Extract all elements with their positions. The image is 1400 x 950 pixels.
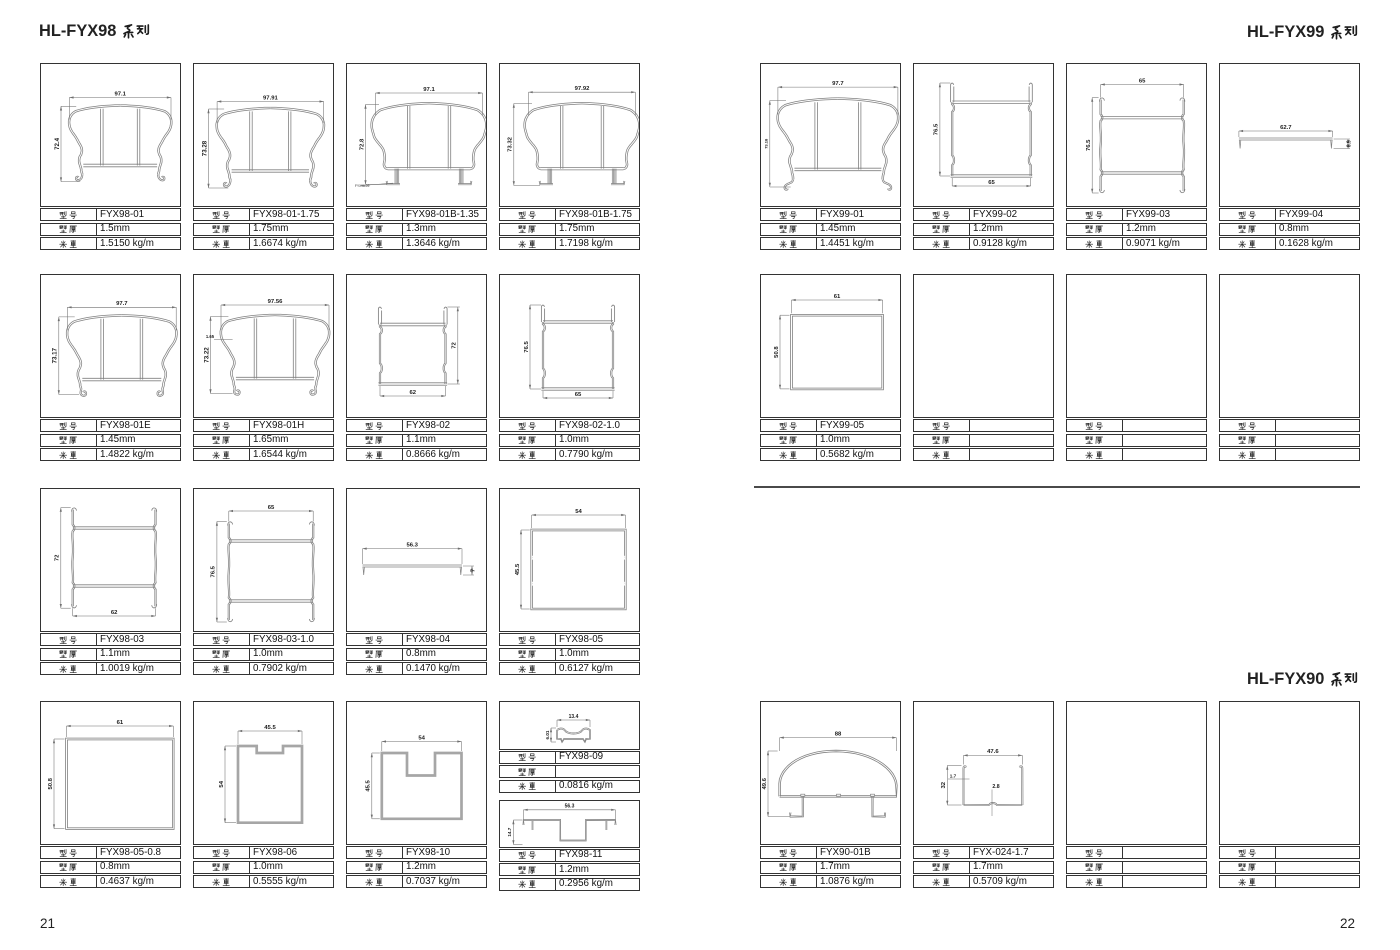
svg-text:62: 62: [111, 610, 118, 616]
svg-text:76.5: 76.5: [1086, 139, 1092, 151]
svg-text:45.5: 45.5: [264, 725, 276, 731]
svg-text:7: 7: [471, 569, 477, 572]
svg-text:73.32: 73.32: [508, 136, 514, 151]
svg-text:47.6: 47.6: [987, 749, 999, 755]
svg-text:65: 65: [1139, 78, 1146, 84]
svg-text:61: 61: [117, 720, 124, 726]
svg-text:88: 88: [835, 731, 842, 737]
svg-text:50.8: 50.8: [48, 777, 54, 789]
svg-text:56.3: 56.3: [565, 804, 575, 810]
svg-text:54: 54: [575, 509, 582, 515]
svg-text:65: 65: [268, 505, 275, 511]
svg-text:73.22: 73.22: [203, 347, 210, 363]
svg-text:45.5: 45.5: [366, 779, 372, 791]
svg-text:FYX98-09: FYX98-09: [355, 184, 370, 188]
svg-text:56.3: 56.3: [406, 542, 418, 548]
svg-text:54: 54: [418, 735, 425, 741]
svg-text:13.4: 13.4: [569, 714, 579, 720]
svg-text:45.5: 45.5: [515, 563, 521, 575]
svg-text:1.7: 1.7: [950, 774, 957, 779]
svg-text:62.7: 62.7: [1280, 125, 1292, 131]
svg-text:54: 54: [219, 780, 225, 787]
svg-text:76.5: 76.5: [934, 123, 940, 135]
svg-text:97.1: 97.1: [114, 91, 126, 97]
svg-text:65: 65: [575, 392, 582, 398]
svg-text:73.18: 73.18: [764, 138, 769, 149]
svg-text:97.7: 97.7: [832, 81, 844, 87]
svg-text:72: 72: [55, 554, 61, 561]
svg-text:97.91: 97.91: [263, 95, 278, 101]
svg-text:97.92: 97.92: [575, 86, 590, 92]
svg-text:76.5: 76.5: [211, 565, 217, 577]
svg-text:73.17: 73.17: [52, 347, 59, 363]
svg-text:72.4: 72.4: [54, 137, 61, 150]
svg-text:72.8: 72.8: [359, 138, 365, 150]
svg-text:62: 62: [410, 390, 417, 396]
svg-text:97.56: 97.56: [268, 299, 283, 305]
svg-text:6.01: 6.01: [545, 730, 550, 739]
svg-text:73.28: 73.28: [201, 140, 208, 156]
svg-text:2.8: 2.8: [992, 784, 999, 790]
svg-text:49.6: 49.6: [762, 777, 768, 789]
svg-text:32: 32: [941, 781, 947, 788]
svg-text:14.7: 14.7: [507, 827, 512, 836]
svg-text:6.9: 6.9: [1347, 140, 1353, 147]
svg-text:97.1: 97.1: [423, 87, 435, 93]
svg-text:1.65: 1.65: [206, 334, 215, 339]
svg-text:97.7: 97.7: [116, 301, 128, 307]
svg-text:76.5: 76.5: [524, 341, 530, 353]
svg-text:65: 65: [988, 180, 995, 186]
svg-text:72: 72: [452, 342, 458, 349]
svg-text:61: 61: [834, 294, 841, 300]
svg-text:50.8: 50.8: [774, 346, 780, 358]
